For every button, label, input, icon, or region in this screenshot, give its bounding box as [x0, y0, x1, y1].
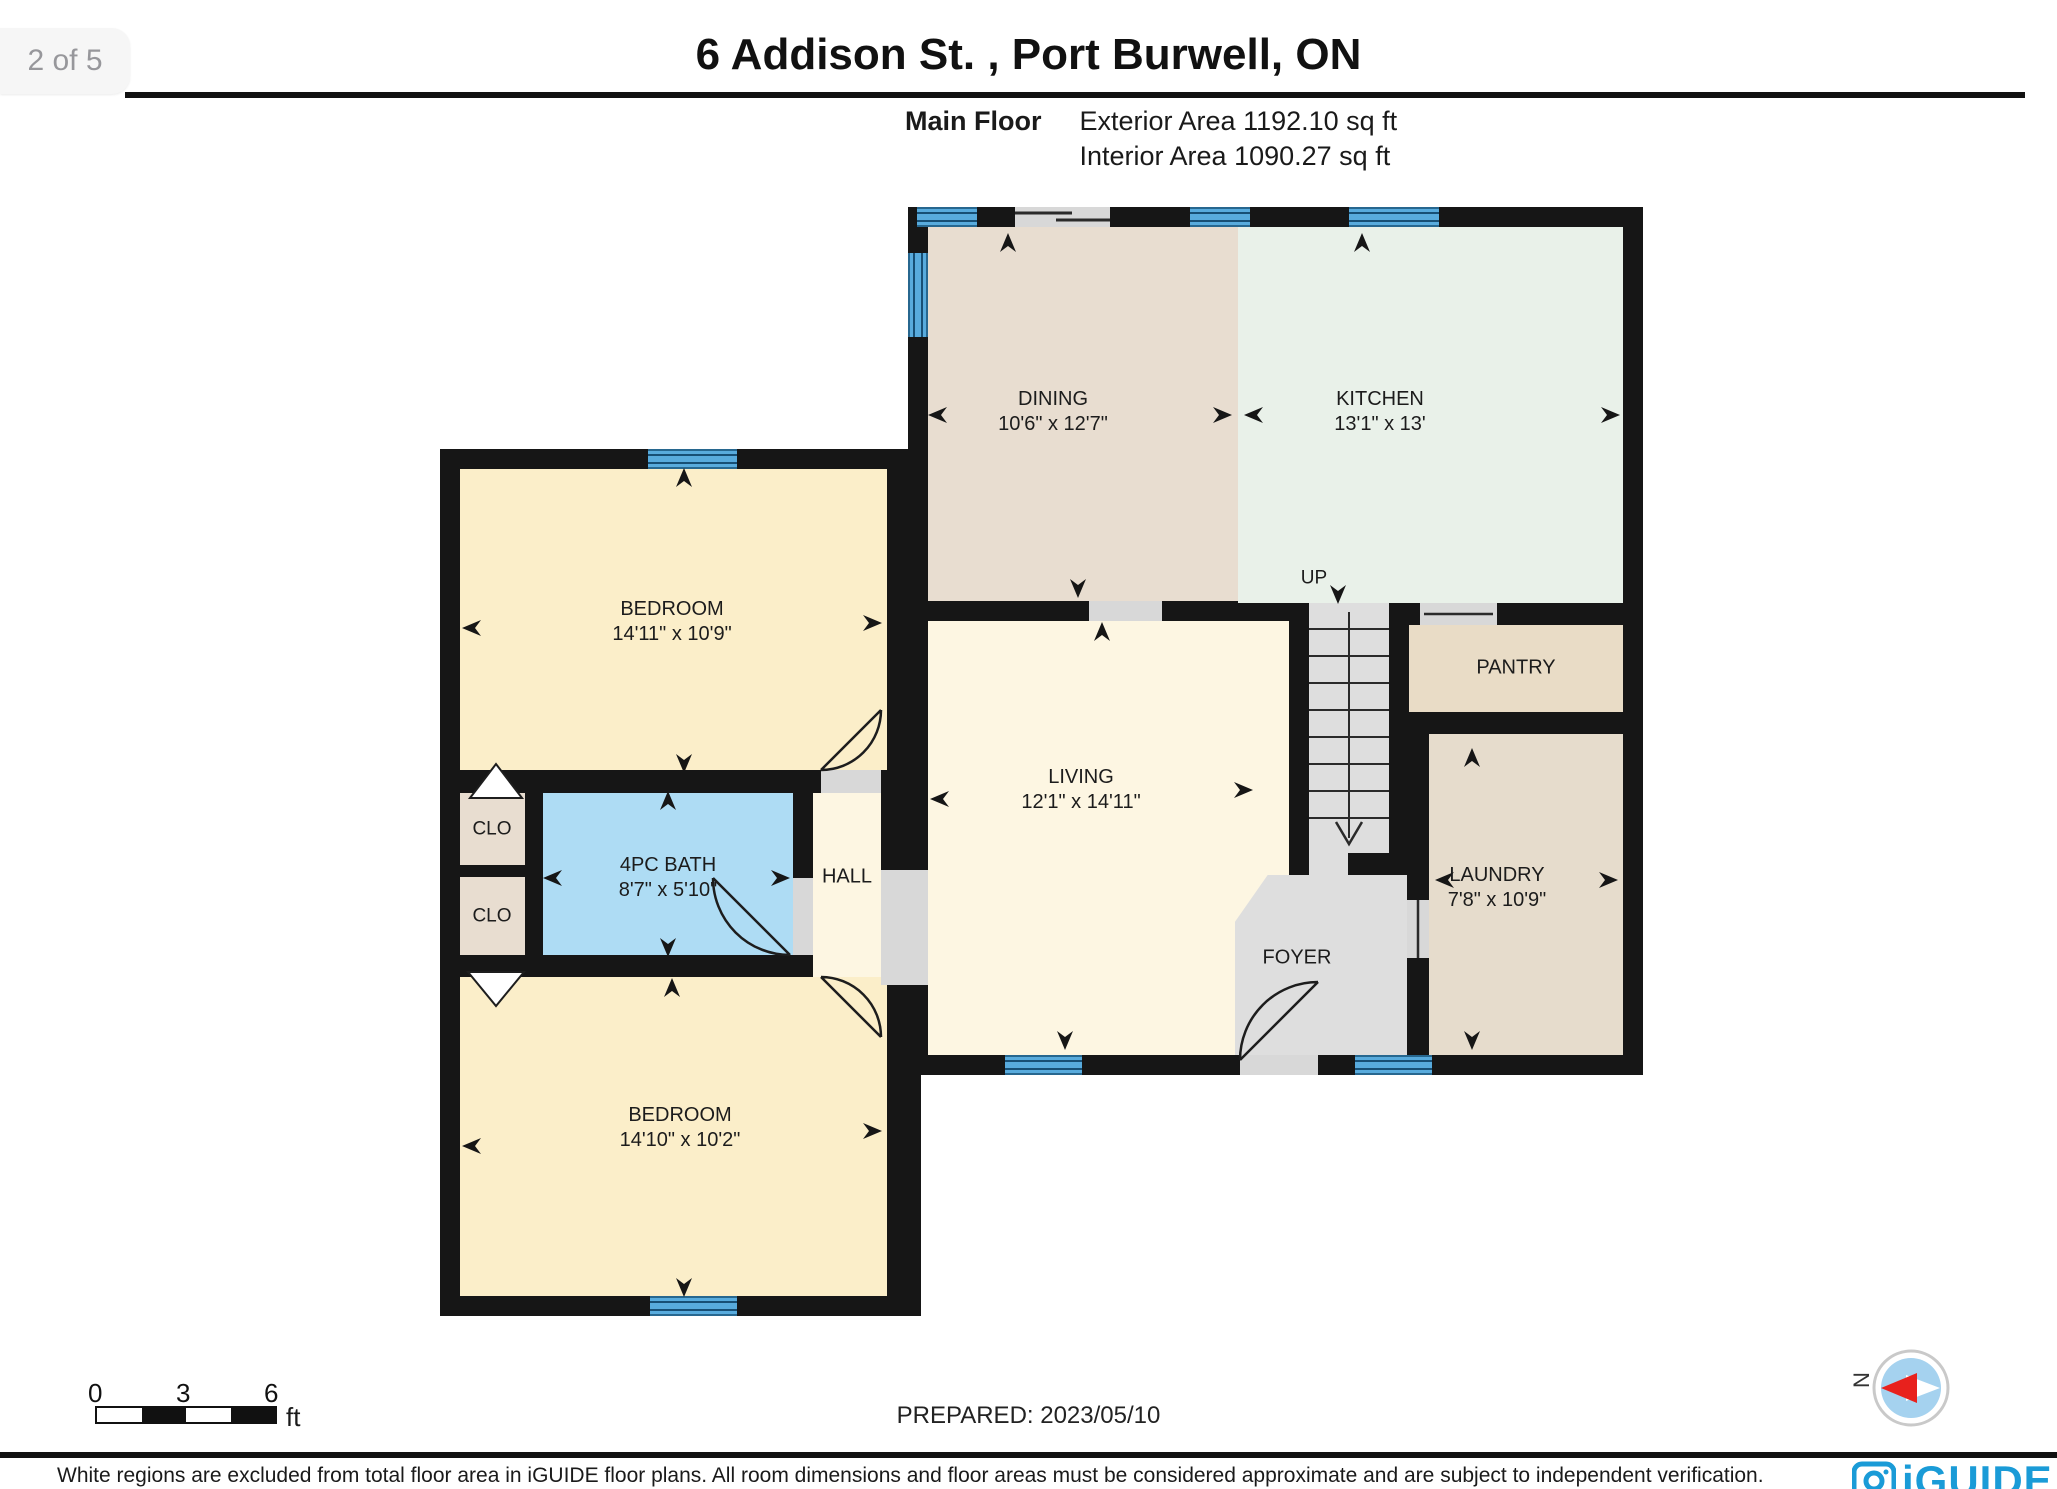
room-living — [928, 621, 1289, 1055]
room-pantry-label: PANTRY — [1476, 656, 1555, 681]
window-marker — [917, 207, 977, 227]
floor-info: Main Floor Exterior Area 1192.10 sq ft I… — [905, 104, 1397, 174]
exterior-area: Exterior Area 1192.10 sq ft — [1080, 104, 1398, 139]
room-bedroom1-label: BEDROOM14'11" x 10'9" — [612, 597, 731, 647]
iguide-logo-text: iGUIDE — [1902, 1460, 2053, 1489]
floorplan-page: 2 of 5 6 Addison St. , Port Burwell, ON … — [0, 0, 2057, 1489]
window-marker — [648, 449, 737, 469]
dining-living-opening — [1089, 601, 1162, 621]
iguide-logo: iGUIDE — [1852, 1460, 2053, 1489]
pantry-opening — [1420, 603, 1497, 625]
stair-treads — [1309, 603, 1389, 843]
hall-living-opening — [881, 870, 928, 985]
page-title: 6 Addison St. , Port Burwell, ON — [0, 30, 2057, 80]
entry-doorway — [1240, 1055, 1318, 1075]
room-living-label: LIVING12'1" x 14'11" — [1021, 765, 1140, 815]
room-kitchen — [1238, 227, 1623, 603]
window-marker — [908, 253, 928, 337]
footer-divider — [0, 1452, 2057, 1458]
window-marker — [1355, 1055, 1432, 1075]
title-divider — [125, 92, 2025, 98]
bedroom1-doorway — [821, 770, 881, 793]
room-hall-label: HALL — [822, 865, 872, 890]
window-marker — [650, 1296, 737, 1316]
laundry-doorway — [1407, 900, 1429, 958]
room-bath-label: 4PC BATH8'7" x 5'10" — [619, 853, 718, 903]
compass-north-label: N — [1849, 1372, 1874, 1388]
footer-disclaimer: White regions are excluded from total fl… — [57, 1464, 1764, 1488]
iguide-camera-icon — [1852, 1460, 1896, 1489]
stairs-up-label: UP — [1301, 566, 1327, 591]
room-bedroom2-label: BEDROOM14'10" x 10'2" — [620, 1103, 741, 1153]
stair-landing-wall — [1348, 853, 1409, 875]
sliding-door — [1015, 207, 1110, 227]
bath-doorway — [793, 878, 813, 955]
interior-area: Interior Area 1090.27 sq ft — [1080, 139, 1398, 174]
room-laundry-label: LAUNDRY7'8" x 10'9" — [1448, 863, 1547, 913]
floor-name: Main Floor — [905, 104, 1042, 174]
room-clo1-label: CLO — [472, 817, 511, 842]
window-marker — [1190, 207, 1250, 227]
room-dining-label: DINING10'6" x 12'7" — [998, 387, 1108, 437]
room-clo2-label: CLO — [472, 904, 511, 929]
room-foyer-label: FOYER — [1263, 946, 1332, 971]
window-marker — [1005, 1055, 1082, 1075]
window-marker — [1349, 207, 1439, 227]
prepared-date: PREPARED: 2023/05/10 — [0, 1402, 2057, 1430]
room-kitchen-label: KITCHEN13'1" x 13' — [1334, 387, 1425, 437]
